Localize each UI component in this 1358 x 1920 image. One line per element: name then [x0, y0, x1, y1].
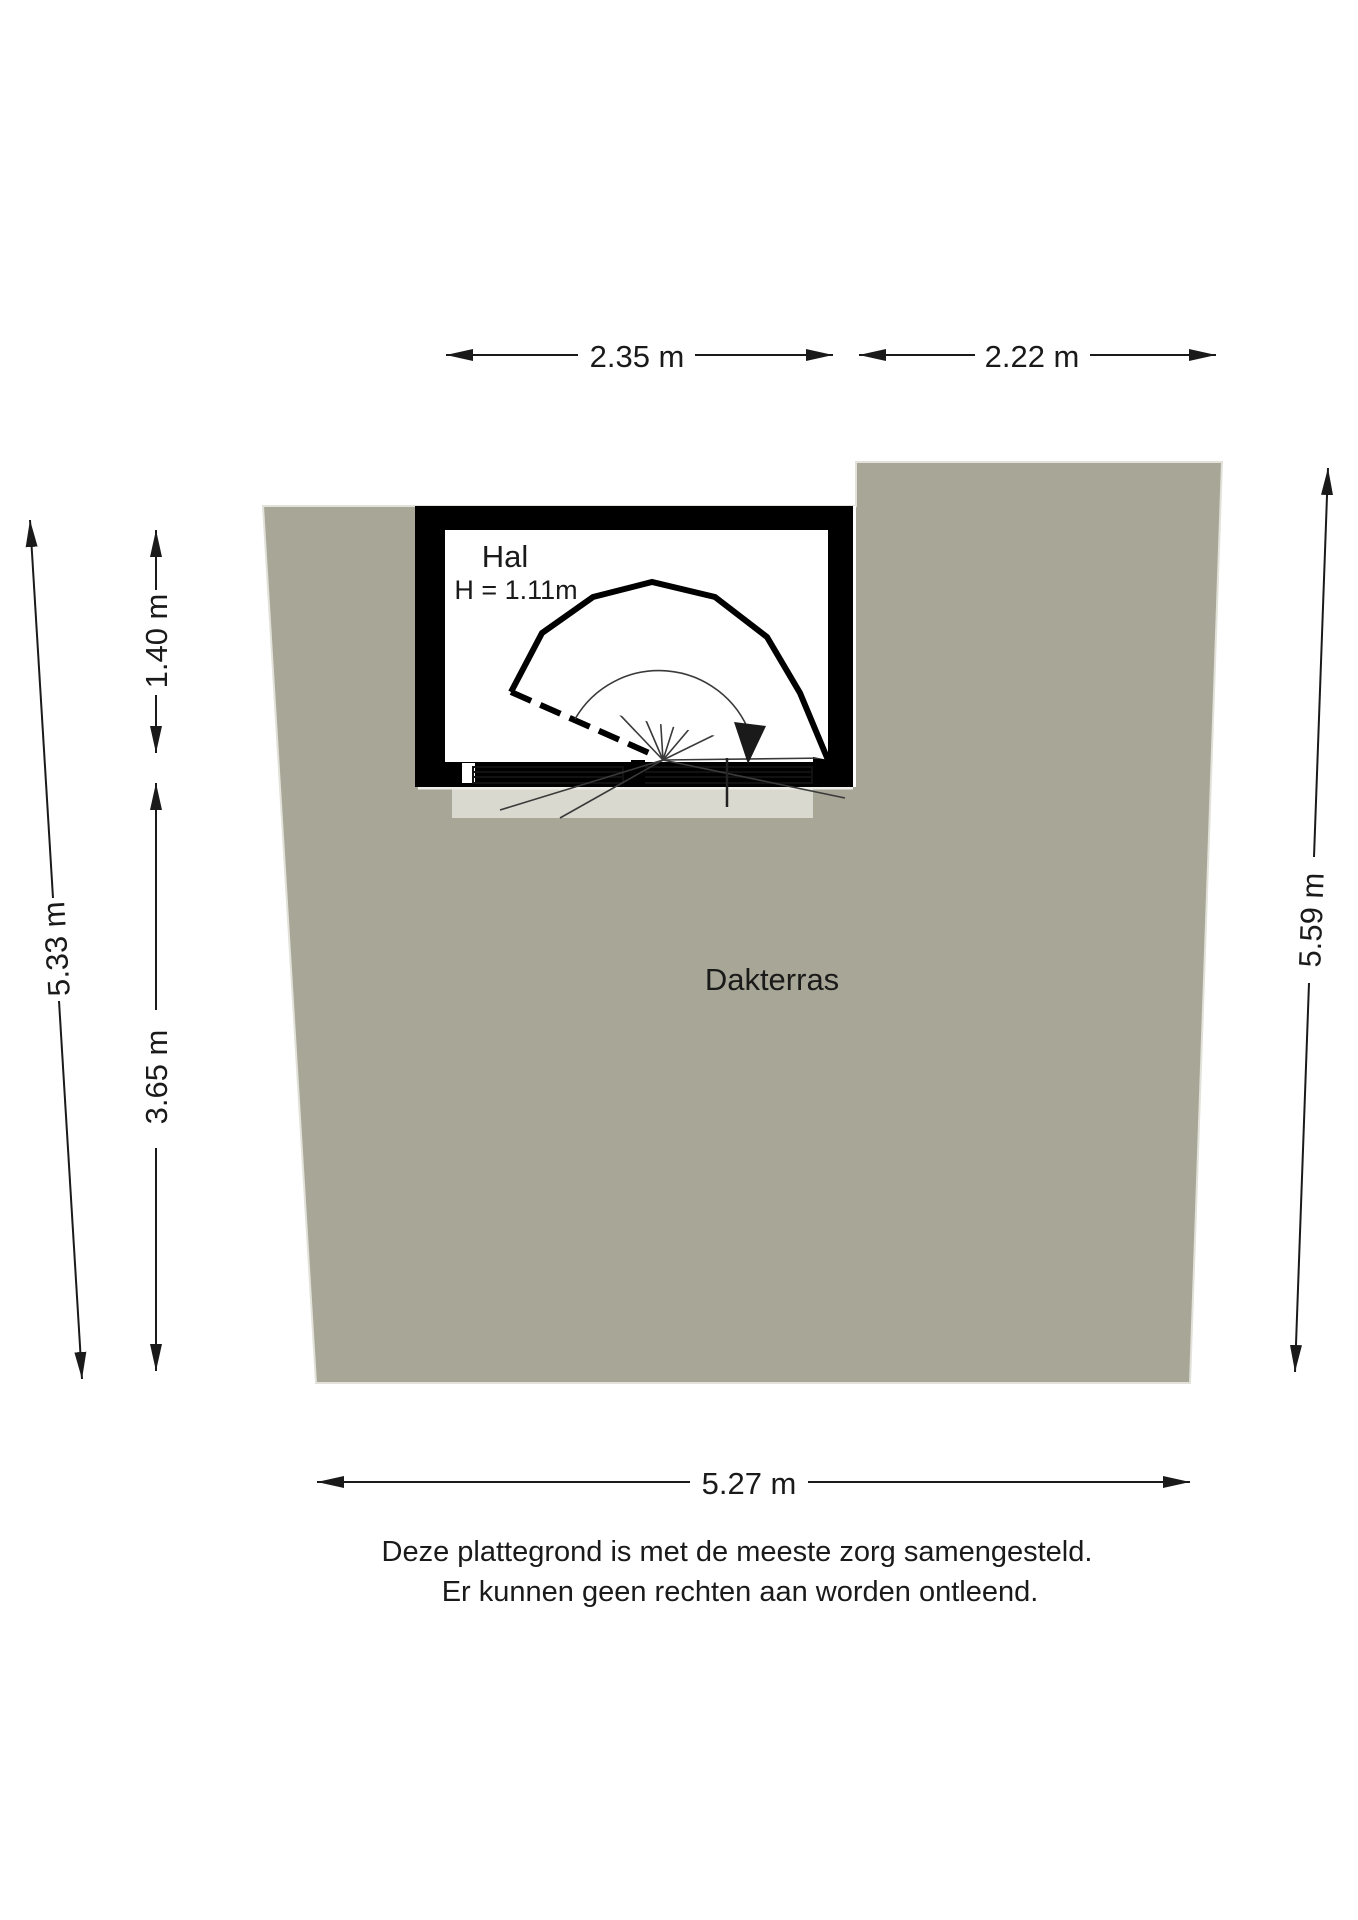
dim-bottom: 5.27 m	[317, 1466, 1190, 1501]
wall-corner-right	[813, 757, 853, 787]
wall-bottom-edge	[418, 787, 853, 790]
dim-left-upper: 1.40 m	[139, 530, 174, 753]
dim-top-right: 2.22 m	[859, 339, 1216, 374]
hal-room: Hal H = 1.11m	[415, 506, 856, 818]
floorplan-canvas: Hal H = 1.11m Dakterras 2.35 m 2.22 m 1.…	[0, 0, 1358, 1920]
dim-right-side: 5.59 m	[1292, 468, 1330, 1372]
wall-corner-left	[445, 762, 462, 779]
lower-landing	[452, 788, 813, 818]
dim-right-side-label: 5.59 m	[1292, 872, 1330, 968]
room-height-label-hal: H = 1.11m	[454, 575, 577, 605]
room-label-dakterras: Dakterras	[705, 962, 839, 997]
dim-bottom-label: 5.27 m	[702, 1466, 797, 1501]
dim-top-left-label: 2.35 m	[590, 339, 685, 374]
dim-top-right-label: 2.22 m	[985, 339, 1080, 374]
dim-left-outer-label: 5.33 m	[36, 901, 77, 998]
wall-terrace-gap	[853, 506, 856, 787]
dim-left-lower-label: 3.65 m	[139, 1030, 174, 1125]
disclaimer-line-2: Er kunnen geen rechten aan worden ontlee…	[442, 1576, 1039, 1608]
disclaimer-line-1: Deze plattegrond is met de meeste zorg s…	[382, 1536, 1093, 1568]
dim-left-lower: 3.65 m	[139, 783, 174, 1371]
dim-left-upper-label: 1.40 m	[139, 594, 174, 689]
dim-top-left: 2.35 m	[446, 339, 833, 374]
floorplan-page: Hal H = 1.11m Dakterras 2.35 m 2.22 m 1.…	[0, 0, 1358, 1920]
room-label-hal: Hal	[482, 539, 529, 574]
dim-left-outer: 5.33 m	[30, 520, 82, 1379]
